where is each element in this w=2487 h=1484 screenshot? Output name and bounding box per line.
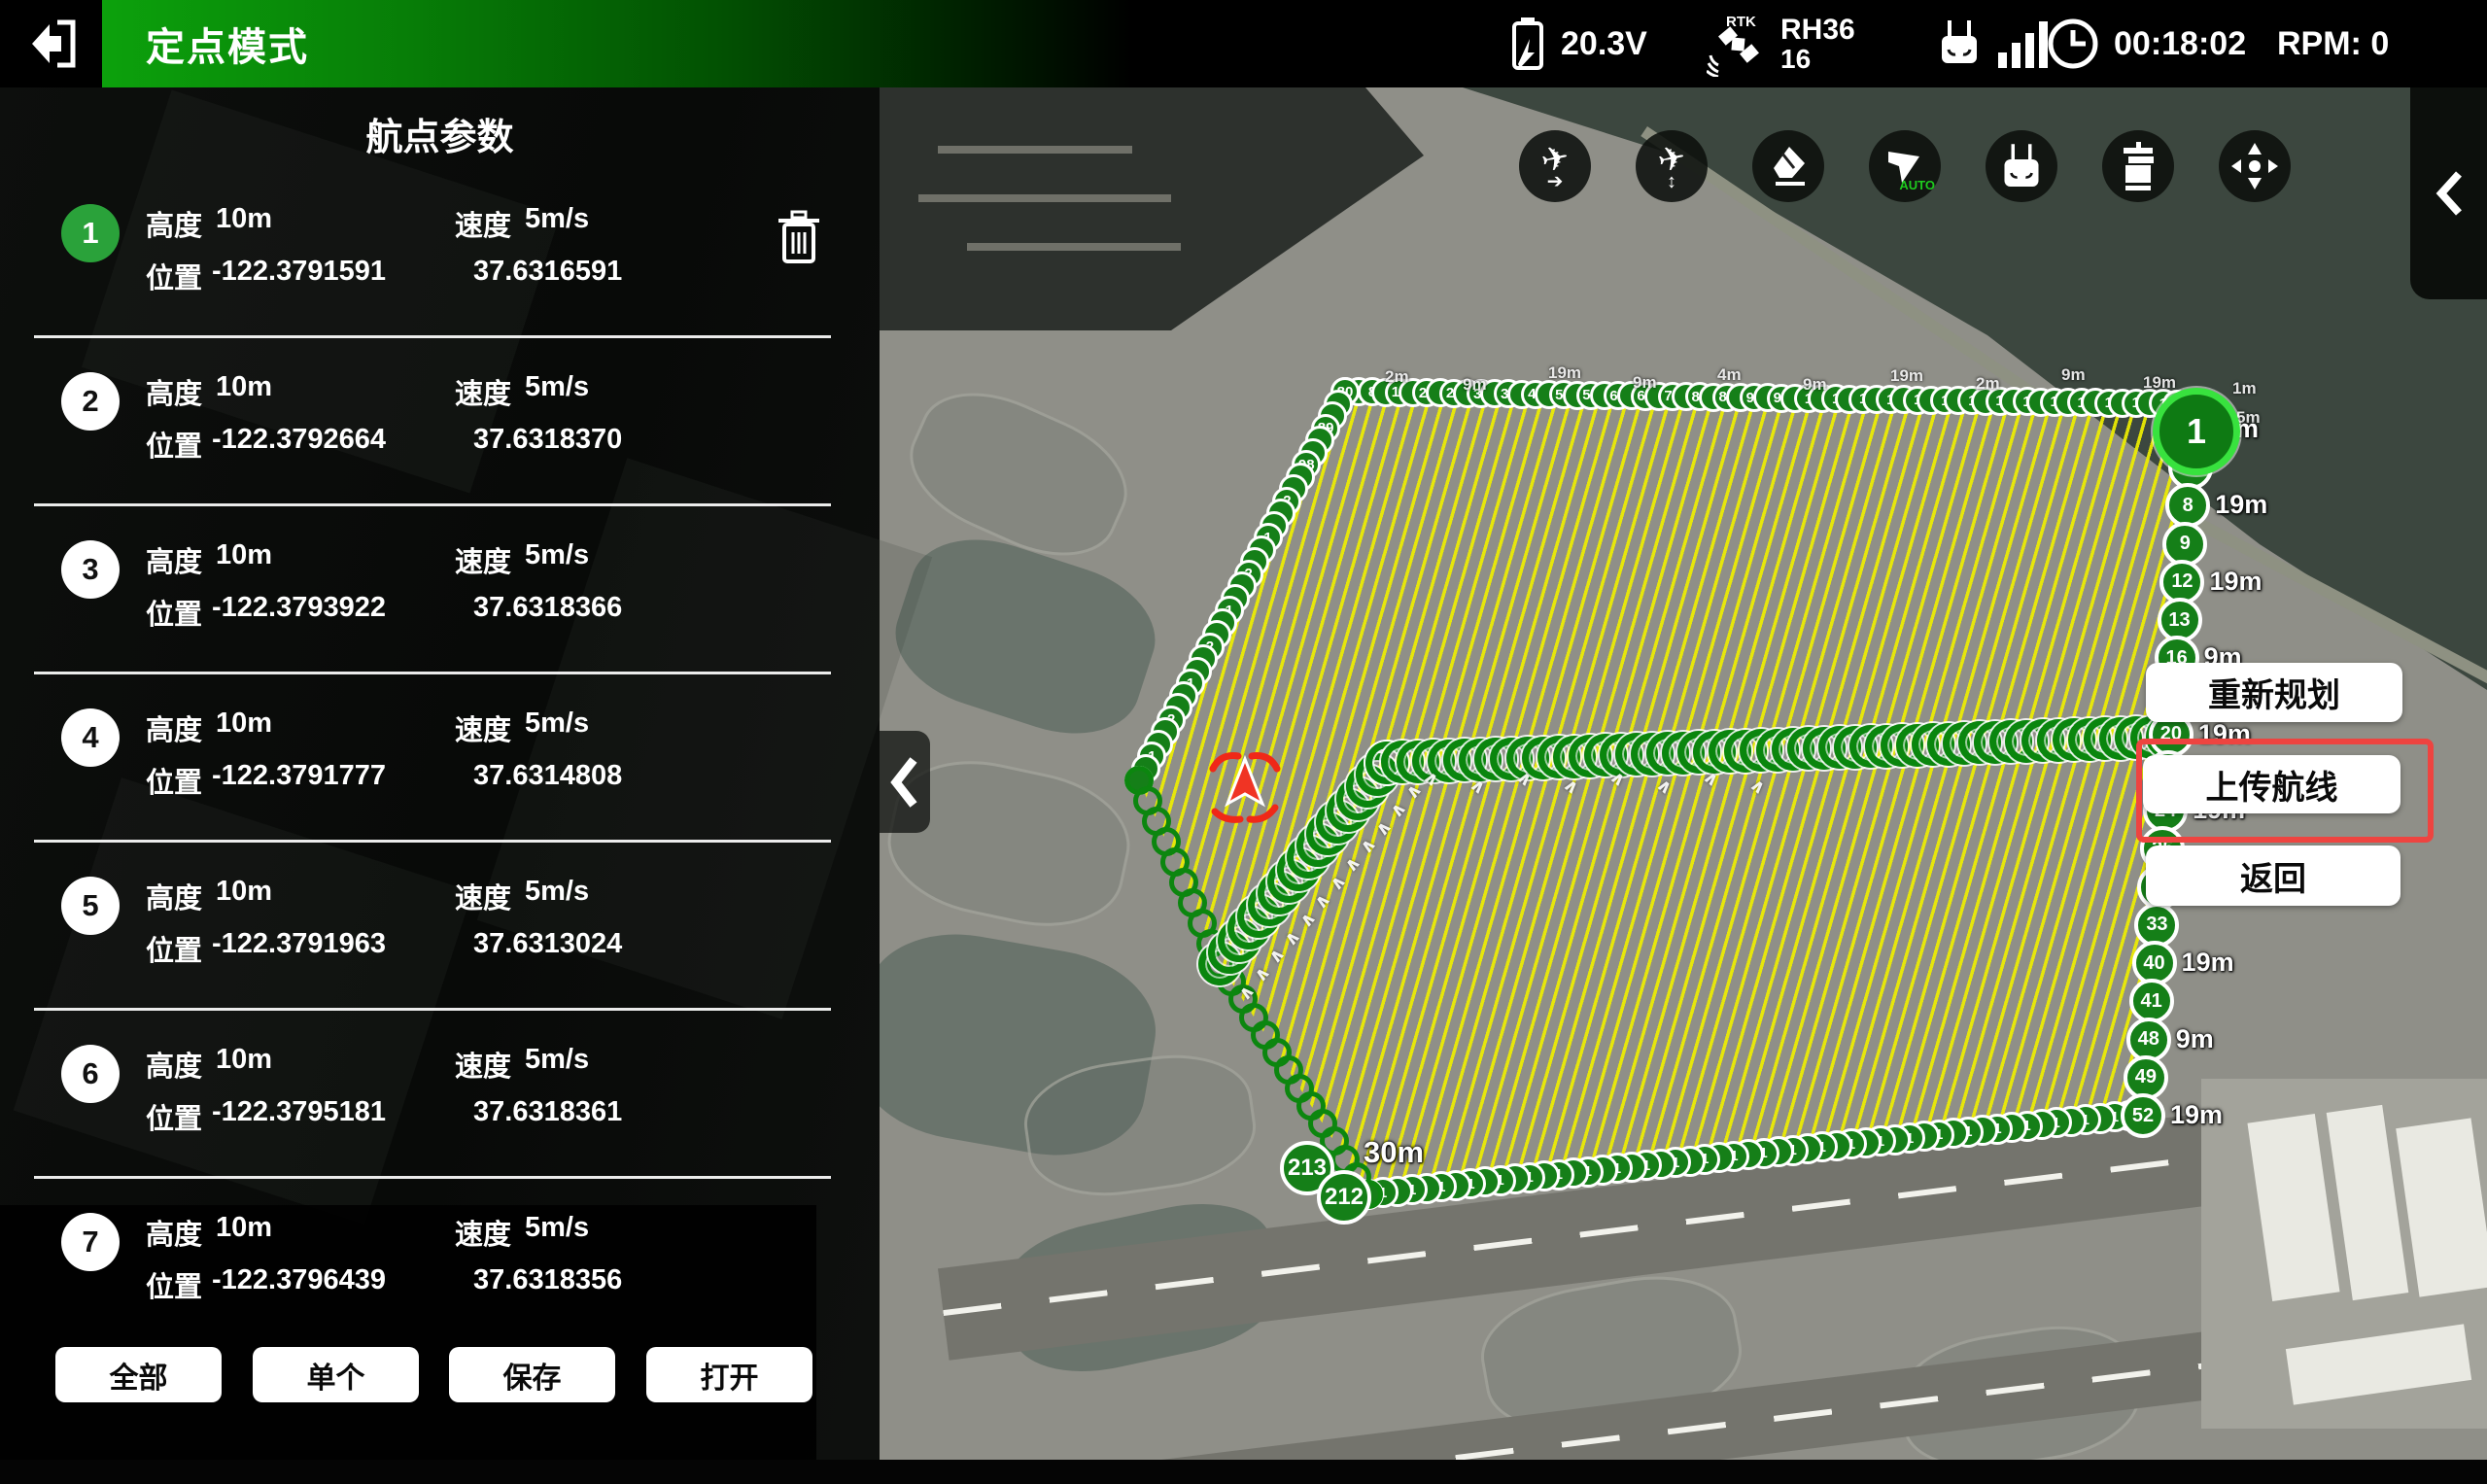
latitude-value: 37.6316591: [473, 256, 622, 288]
position-label: 位置: [146, 256, 202, 296]
altitude-fuzz-label: 19m: [1548, 363, 1581, 383]
open-button[interactable]: 打开: [646, 1347, 812, 1402]
latitude-value: 37.6314808: [473, 760, 622, 792]
altitude-fuzz-label: 19m: [1890, 366, 1923, 386]
altitude-label: 高度: [146, 876, 202, 916]
altitude-fuzz-label: 2m: [1385, 367, 1409, 387]
rtk-name: RH36: [1780, 15, 1855, 46]
back-arrow-icon: [24, 17, 79, 71]
battery-voltage: 20.3V: [1561, 25, 1647, 63]
rpm-readout: RPM: 0: [2277, 25, 2389, 63]
position-label: 位置: [146, 760, 202, 801]
latitude-value: 37.6313024: [473, 928, 622, 960]
list-separator: [34, 1008, 831, 1011]
altitude-value: 10m: [216, 876, 272, 908]
altitude-label: 高度: [146, 1044, 202, 1085]
list-separator: [34, 1176, 831, 1179]
longitude-value: -122.3791777: [212, 760, 386, 792]
waypoint-sidebar: 航点参数 1 高度 10m 速度 5m/s 位置 -122.3791591 37…: [0, 87, 880, 1484]
longitude-value: -122.3792664: [212, 424, 386, 456]
map-pier: [918, 194, 1171, 202]
altitude-fuzz-label: 9m: [1633, 373, 1657, 393]
altitude-value: 10m: [216, 539, 272, 571]
waypoint-item-3[interactable]: 3 高度 10m 速度 5m/s 位置 -122.3793922 37.6318…: [0, 526, 880, 694]
position-label: 位置: [146, 1264, 202, 1305]
speed-value: 5m/s: [525, 203, 589, 235]
altitude-label: 19m: [2182, 948, 2234, 978]
remote-link-status: [1934, 0, 2048, 87]
position-label: 位置: [146, 1096, 202, 1137]
list-separator: [34, 840, 831, 843]
list-separator: [34, 503, 831, 506]
dpad-button[interactable]: [2219, 130, 2291, 202]
altitude-label-30m: 30m: [1364, 1135, 1424, 1170]
replan-button[interactable]: 重新规划: [2146, 663, 2402, 722]
waypoint-number-badge: 4: [61, 708, 120, 767]
altitude-label: 高度: [146, 707, 202, 748]
altitude-fuzz-label: 9m: [1463, 375, 1487, 395]
rtk-satellite-icon: RTK: [1707, 11, 1767, 77]
altitude-label: 9m: [2176, 1024, 2214, 1054]
waypoint-item-1[interactable]: 1 高度 10m 速度 5m/s 位置 -122.3791591 37.6316…: [0, 190, 880, 358]
longitude-value: -122.3791591: [212, 256, 386, 288]
altitude-fuzz-label: 9m: [1803, 375, 1827, 395]
altitude-value: 10m: [216, 203, 272, 235]
waypoint-item-5[interactable]: 5 高度 10m 速度 5m/s 位置 -122.3791963 37.6313…: [0, 862, 880, 1030]
altitude-value: 10m: [216, 707, 272, 740]
map-waypoint-1-marker[interactable]: 1: [2153, 388, 2240, 475]
rtk-satellite-count: 16: [1780, 45, 1855, 73]
return-button[interactable]: 返回: [2146, 846, 2401, 906]
gimbal-button[interactable]: [2102, 130, 2174, 202]
flight-time-status: 00:18:02: [2046, 0, 2246, 87]
eraser-icon: [1764, 142, 1813, 190]
save-button[interactable]: 保存: [449, 1347, 615, 1402]
top-status-bar: 定点模式 20.3V RTK RH36 16: [0, 0, 2487, 87]
speed-label: 速度: [455, 1044, 511, 1085]
map-marina-area: [880, 87, 1424, 330]
altitude-label: 高度: [146, 1212, 202, 1253]
speed-label: 速度: [455, 876, 511, 916]
auto-label: AUTO: [1899, 178, 1935, 192]
latitude-value: 37.6318370: [473, 424, 622, 456]
clock-icon: [2046, 17, 2100, 71]
altitude-value: 10m: [216, 1212, 272, 1244]
auto-route-button[interactable]: AUTO: [1869, 130, 1941, 202]
waypoint-item-2[interactable]: 2 高度 10m 速度 5m/s 位置 -122.3792664 37.6318…: [0, 358, 880, 526]
altitude-label: 高度: [146, 203, 202, 244]
map-waypoint-marker-52[interactable]: 52: [2121, 1093, 2165, 1138]
eraser-button[interactable]: [1752, 130, 1824, 202]
speed-value: 5m/s: [525, 539, 589, 571]
remote-controller-icon: [1934, 13, 1985, 75]
altitude-label: 19m: [2198, 719, 2251, 749]
signal-strength-icon: [1998, 19, 2048, 68]
speed-value: 5m/s: [525, 876, 589, 908]
speed-label: 速度: [455, 371, 511, 412]
speed-value: 5m/s: [525, 707, 589, 740]
speed-value: 5m/s: [525, 371, 589, 403]
plane-altitude-button[interactable]: ✈ ↕: [1636, 130, 1708, 202]
altitude-label: 高度: [146, 371, 202, 412]
waypoint-item-4[interactable]: 4 高度 10m 速度 5m/s 位置 -122.3791777 37.6314…: [0, 694, 880, 862]
drone-position-icon: [1201, 743, 1289, 831]
speed-label: 速度: [455, 1212, 511, 1253]
latitude-value: 37.6318356: [473, 1264, 622, 1296]
altitude-fuzz-label: 19m: [2143, 373, 2176, 393]
map-waypoint-marker-212[interactable]: 212: [1317, 1170, 1371, 1225]
altitude-label: 19m: [2215, 490, 2267, 520]
altitude-label: 高度: [146, 539, 202, 580]
rtk-status: RTK RH36 16: [1707, 0, 1855, 87]
latitude-value: 37.6318361: [473, 1096, 622, 1128]
plane-forward-icon: ✈: [1538, 140, 1572, 178]
upload-route-button[interactable]: 上传航线: [2143, 755, 2401, 813]
speed-value: 5m/s: [525, 1044, 589, 1076]
position-label: 位置: [146, 592, 202, 633]
longitude-value: -122.3793922: [212, 592, 386, 624]
waypoint-item-7[interactable]: 7 高度 10m 速度 5m/s 位置 -122.3796439 37.6318…: [0, 1198, 880, 1366]
latitude-value: 37.6318366: [473, 592, 622, 624]
chevron-left-icon: [2434, 170, 2465, 217]
altitude-value: 10m: [216, 371, 272, 403]
waypoint-number-badge: 7: [61, 1213, 120, 1271]
position-label: 位置: [146, 928, 202, 969]
plane-forward-button[interactable]: ✈ ➔: [1519, 130, 1591, 202]
waypoint-number-badge: 1: [61, 204, 120, 262]
single-button[interactable]: 单个: [253, 1347, 419, 1402]
list-separator: [34, 335, 831, 338]
rpm-status: RPM: 0: [2277, 0, 2389, 87]
longitude-value: -122.3796439: [212, 1264, 386, 1296]
speed-label: 速度: [455, 539, 511, 580]
remote-controller-icon: [1998, 139, 2045, 193]
plane-altitude-icon: ✈: [1655, 140, 1689, 178]
flight-mode-label: 定点模式: [146, 0, 309, 87]
list-separator: [34, 672, 831, 674]
battery-status: 20.3V: [1508, 0, 1647, 87]
altitude-label: 19m: [2209, 567, 2262, 597]
waypoint-number-badge: 6: [61, 1045, 120, 1103]
map-pier: [938, 146, 1132, 154]
waypoint-item-6[interactable]: 6 高度 10m 速度 5m/s 位置 -122.3795181 37.6318…: [0, 1030, 880, 1198]
dpad-icon: [2229, 141, 2280, 191]
waypoint-number-badge: 5: [61, 877, 120, 935]
right-panel-collapse-tab[interactable]: [2410, 87, 2487, 299]
sidebar-collapse-tab[interactable]: [880, 731, 930, 833]
map-pier: [967, 243, 1181, 251]
gimbal-icon: [2114, 140, 2162, 192]
battery-icon: [1508, 14, 1547, 74]
remote-controller-button[interactable]: [1986, 130, 2057, 202]
longitude-value: -122.3791963: [212, 928, 386, 960]
speed-label: 速度: [455, 203, 511, 244]
waypoint-number-badge: 3: [61, 540, 120, 599]
waypoint-number-badge: 2: [61, 372, 120, 431]
altitude-fuzz-label: 1m: [2232, 379, 2257, 398]
sidebar-title: 航点参数: [0, 107, 880, 160]
all-button[interactable]: 全部: [55, 1347, 222, 1402]
chevron-left-icon: [890, 756, 919, 809]
bottom-bezel-strip: [0, 1460, 2487, 1484]
delete-waypoint-button[interactable]: [773, 209, 825, 267]
speed-label: 速度: [455, 707, 511, 748]
altitude-value: 10m: [216, 1044, 272, 1076]
flight-time: 00:18:02: [2114, 25, 2246, 63]
back-button[interactable]: [0, 0, 102, 87]
speed-value: 5m/s: [525, 1212, 589, 1244]
altitude-fuzz-label: 9m: [2061, 365, 2086, 385]
position-label: 位置: [146, 424, 202, 465]
longitude-value: -122.3795181: [212, 1096, 386, 1128]
altitude-fuzz-label: 4m: [1717, 365, 1742, 385]
altitude-fuzz-label: 2m: [1976, 374, 2000, 394]
altitude-label: 19m: [2170, 1100, 2223, 1130]
